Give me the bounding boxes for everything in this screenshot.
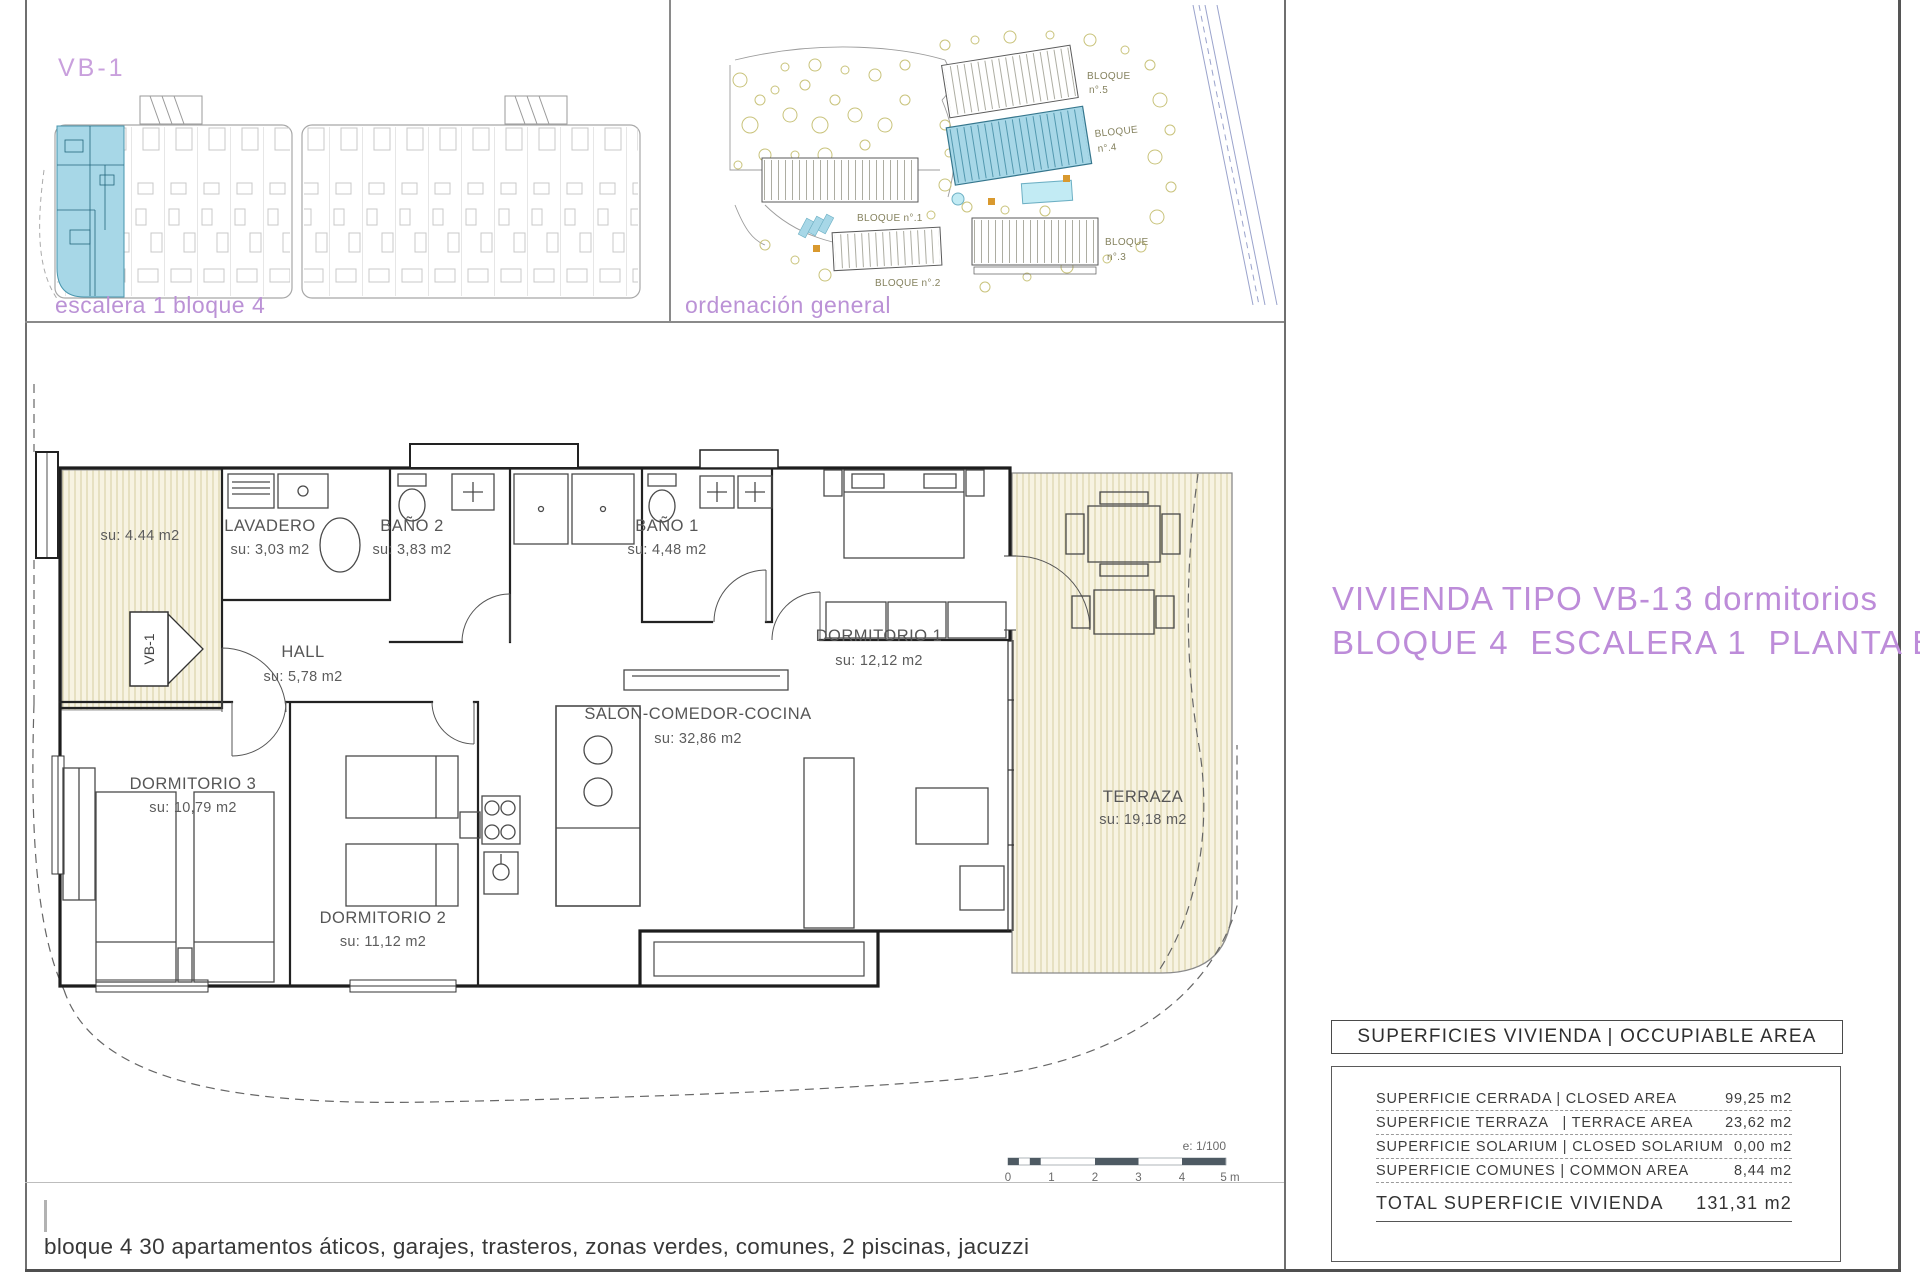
block5-label-top: BLOQUE <box>1087 71 1131 82</box>
title-bloque-escalera-planta: BLOQUE 4 ESCALERA 1 PLANTA BAJA <box>1332 624 1878 662</box>
row-label: SUPERFICIE TERRAZA | TERRACE AREA <box>1376 1115 1693 1131</box>
room-bano1: BAÑO 1 <box>635 515 699 535</box>
site-block-3 <box>972 218 1098 274</box>
room-hall-area: su: 5,78 m2 <box>263 669 342 685</box>
footer-note: bloque 4 30 apartamentos áticos, garajes… <box>44 1234 1029 1260</box>
block2-label: BLOQUE n°.2 <box>875 278 941 289</box>
block5-label-bottom: n°.5 <box>1089 85 1108 96</box>
room-terraza: TERRAZA <box>1103 788 1184 806</box>
scale-tick-5: 5 m <box>1220 1172 1239 1184</box>
room-dormitorio2: DORMITORIO 2 <box>320 909 447 927</box>
door-swings <box>222 556 1090 756</box>
total-value: 131,31 m2 <box>1696 1193 1792 1214</box>
block-elevation-drawing <box>25 60 670 325</box>
table-row: SUPERFICIE TERRAZA | TERRACE AREA 23,62 … <box>1376 1111 1792 1135</box>
row-value: 23,62 m2 <box>1725 1115 1792 1131</box>
scale-bar: e: 1/100 0 1 2 3 4 5 m <box>1005 1139 1240 1184</box>
scale-tick-0: 0 <box>1005 1172 1011 1184</box>
room-salon: SALON-COMEDOR-COCINA <box>584 705 811 723</box>
table-row: SUPERFICIE COMUNES | COMMON AREA 8,44 m2 <box>1376 1159 1792 1183</box>
block4-label-bottom: n°.4 <box>1097 142 1117 155</box>
areas-table: SUPERFICIE CERRADA | CLOSED AREA 99,25 m… <box>1331 1066 1841 1262</box>
row-label: SUPERFICIE SOLARIUM | CLOSED SOLARIUM <box>1376 1139 1724 1155</box>
row-value: 99,25 m2 <box>1725 1091 1792 1107</box>
room-salon-area: su: 32,86 m2 <box>654 731 741 747</box>
room-lavadero: LAVADERO <box>224 517 315 535</box>
site-block-1 <box>762 158 918 202</box>
caption-ordenacion: ordenación general <box>685 292 891 319</box>
caption-escalera: escalera 1 bloque 4 <box>55 292 265 319</box>
table-row: SUPERFICIE SOLARIUM | CLOSED SOLARIUM 0,… <box>1376 1135 1792 1159</box>
row-value: 0,00 m2 <box>1734 1139 1792 1155</box>
scale-tick-3: 3 <box>1135 1172 1141 1184</box>
room-dormitorio3: DORMITORIO 3 <box>130 775 257 793</box>
table-total-row: TOTAL SUPERFICIE VIVIENDA 131,31 m2 <box>1376 1193 1792 1222</box>
room-bano2-area: su: 3,83 m2 <box>372 542 451 558</box>
scale-tick-2: 2 <box>1092 1172 1098 1184</box>
room-dormitorio1-area: su: 12,12 m2 <box>835 653 922 669</box>
room-dormitorio1: DORMITORIO 1 <box>816 627 943 645</box>
scale-tick-1: 1 <box>1048 1172 1054 1184</box>
footer-tick-mark <box>44 1200 47 1232</box>
block3-label-top: BLOQUE <box>1105 237 1149 248</box>
stairs-icon <box>140 96 567 124</box>
site-block-5 <box>942 45 1079 118</box>
room-lavadero-area: su: 3,03 m2 <box>230 542 309 558</box>
building-wing-2 <box>302 125 640 298</box>
total-label: TOTAL SUPERFICIE VIVIENDA <box>1376 1193 1664 1214</box>
block1-label: BLOQUE n°.1 <box>857 213 923 224</box>
room-dormitorio2-area: su: 11,12 m2 <box>340 934 426 950</box>
floorplan-drawing: VB-1 su: 4.44 m2 LAVADERO su: 3,03 m2 BA… <box>25 330 1285 1270</box>
terrace-hatch <box>1012 473 1232 973</box>
row-label: SUPERFICIE CERRADA | CLOSED AREA <box>1376 1091 1677 1107</box>
site-plan-drawing: BLOQUE n°.5 BLOQUE n°.4 BLOQUE n°.1 BLOQ… <box>705 5 1285 305</box>
row-label: SUPERFICIE COMUNES | COMMON AREA <box>1376 1163 1689 1179</box>
unit-tag-text: VB-1 <box>141 633 157 664</box>
room-terraza-area: su: 19,18 m2 <box>1099 812 1186 828</box>
scale-tick-4: 4 <box>1179 1172 1186 1184</box>
entrance-area: su: 4.44 m2 <box>100 528 179 544</box>
salon-glass-wall <box>1008 640 1014 931</box>
table-row: SUPERFICIE CERRADA | CLOSED AREA 99,25 m… <box>1376 1087 1792 1111</box>
block4-label-top: BLOQUE <box>1094 124 1138 139</box>
title-dormitorios: 3 dormitorios <box>1674 580 1878 618</box>
room-dormitorio3-area: su: 10,79 m2 <box>149 800 236 816</box>
site-road-diagonal <box>1193 5 1277 305</box>
title-vivienda-tipo: VIVIENDA TIPO VB-1 <box>1332 580 1670 618</box>
site-block-4-highlight <box>946 106 1091 185</box>
scale-ratio: e: 1/100 <box>1183 1139 1227 1153</box>
unit-highlight <box>57 126 124 297</box>
areas-table-header: SUPERFICIES VIVIENDA | OCCUPIABLE AREA <box>1331 1020 1843 1054</box>
site-block-2 <box>832 227 942 271</box>
sheet-title: VIVIENDA TIPO VB-1 3 dormitorios BLOQUE … <box>1332 580 1878 662</box>
block3-label-bottom: n°.3 <box>1107 252 1126 263</box>
row-value: 8,44 m2 <box>1734 1163 1792 1179</box>
room-bano2: BAÑO 2 <box>380 515 444 535</box>
room-bano1-area: su: 4,48 m2 <box>627 542 706 558</box>
room-hall: HALL <box>281 643 324 661</box>
